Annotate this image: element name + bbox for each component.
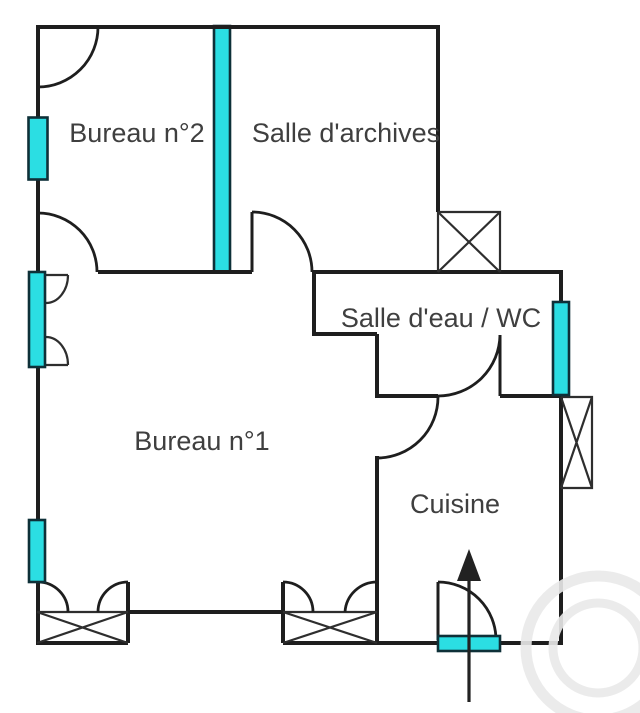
door-swing-frenchdoor1-right <box>98 582 128 612</box>
room-labels: Bureau n°2 Salle d'archives Salle d'eau … <box>69 118 541 519</box>
room-label-bureau-2: Bureau n°2 <box>69 118 204 148</box>
room-label-cuisine: Cuisine <box>410 489 500 519</box>
room-label-salle-archives: Salle d'archives <box>252 118 440 148</box>
window-glazing-right <box>553 302 569 395</box>
entrance-arrow <box>457 549 481 702</box>
crossed-box-frenchdoor2 <box>283 612 377 643</box>
door-swing-cuisine <box>377 397 438 458</box>
room-label-bureau-1: Bureau n°1 <box>134 426 269 456</box>
windows <box>29 118 570 652</box>
crossed-box-frenchdoor1 <box>37 612 128 643</box>
floor-plan-image: Bureau n°2 Salle d'archives Salle d'eau … <box>0 0 640 713</box>
room-label-salle-eau-wc: Salle d'eau / WC <box>341 303 541 333</box>
casement-arc-lower <box>46 337 68 365</box>
casement-arc-upper <box>46 275 68 303</box>
floor-plan-canvas: Bureau n°2 Salle d'archives Salle d'eau … <box>0 0 640 713</box>
casement-window-marks <box>46 275 68 365</box>
window-glazing-left-top <box>29 118 48 180</box>
door-swing-bureau2 <box>38 213 97 272</box>
crossed-box-right-wall <box>561 397 592 488</box>
door-swing-salle-eau <box>438 335 500 396</box>
crossed-box-x <box>438 212 500 272</box>
door-swing-frenchdoor2-right <box>345 582 377 612</box>
door-swing-top-left <box>38 27 98 87</box>
window-glazing-left-bottom <box>29 520 45 582</box>
door-swing-frenchdoor2-left <box>283 582 313 612</box>
glazed-partition <box>214 26 230 272</box>
door-swing-archives <box>252 212 312 272</box>
watermark-circle-inner <box>553 603 640 693</box>
crossed-box-x <box>37 612 128 643</box>
door-swing-entry <box>438 582 496 640</box>
window-glazing-left-middle <box>29 272 45 367</box>
entrance-arrow-head <box>457 549 481 581</box>
crossed-box-x <box>283 612 377 643</box>
door-swing-frenchdoor1-left <box>38 582 68 612</box>
crossed-box-x <box>561 397 592 488</box>
crossed-box-archives <box>438 212 500 272</box>
